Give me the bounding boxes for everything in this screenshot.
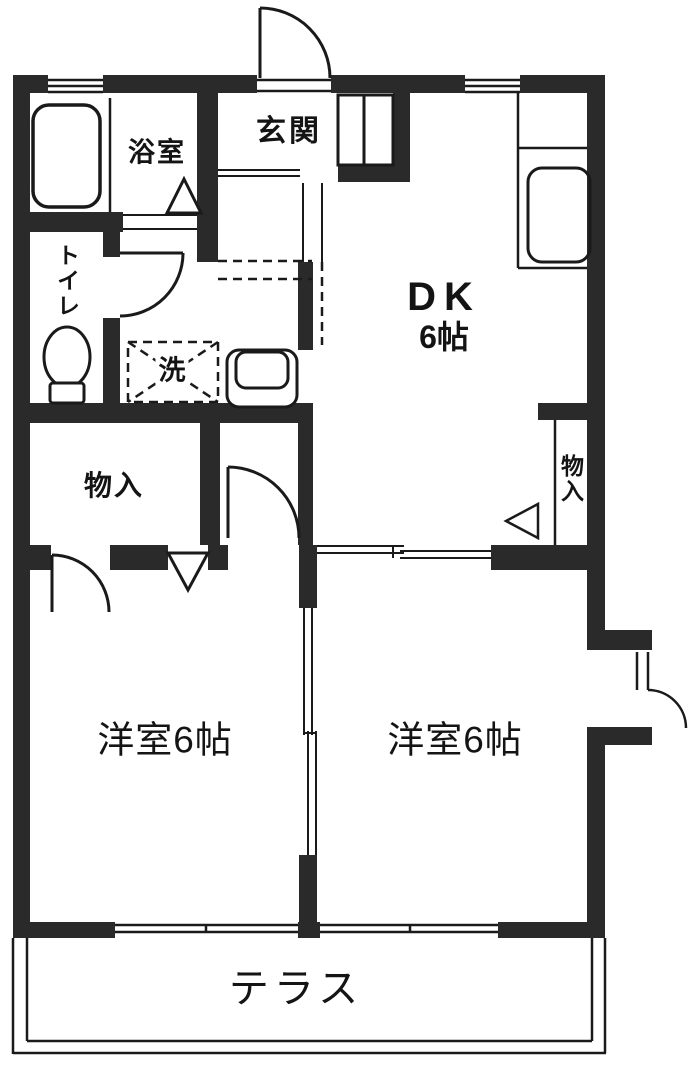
wall-segment [25,212,123,232]
toilet-fixture [44,327,90,403]
wall-segment [13,75,30,938]
closet-left-door [52,555,109,612]
side-service-door [637,652,686,728]
bedroom-left-door-marker [168,553,208,590]
wall-segment [491,545,605,570]
wall-segment [200,423,220,545]
wall-segment [299,545,317,570]
bathroom-window [48,80,103,92]
room-label-closet-right: 物入 [559,454,582,504]
bedroom-sliding-door [304,608,316,855]
bathroom-door-marker [167,179,201,213]
closet-right-door-marker [506,504,538,538]
room-label-terrace: テラス [229,969,363,1009]
wall-segment [103,318,120,405]
entrance-door [260,8,330,78]
wall-segment [103,232,120,257]
dk-sliding-door [317,546,491,558]
wall-segment [298,423,313,545]
wall-segment [338,165,410,182]
wall-segment [587,745,605,922]
wash-basin [227,350,297,407]
room-label-dk-size: 6帖 [419,321,469,353]
room-label-bedroom-left: 洋室6帖 [97,722,233,759]
floor-plan: 玄関 浴室 トイレ 洗 物入 物入 DK 6帖 洋室6帖 洋室6帖 テラス [0,0,700,1066]
wall-segment [298,262,313,350]
wall-segment [299,855,317,922]
wall-segment [587,727,652,745]
bathroom-threshold [123,215,197,229]
wall-segment [299,570,317,608]
wall-segment [197,93,218,262]
room-label-closet-left: 物入 [84,472,144,500]
kitchen-counter [518,93,590,268]
wall-segment [538,403,587,420]
kitchen-window [465,80,520,92]
room-label-bathroom: 浴室 [128,140,186,167]
wall-segment [587,630,652,650]
room-label-dk: DK [407,277,481,317]
bathtub [33,105,100,207]
entrance-step-lines [218,170,322,262]
bedroom-right-window [320,925,498,932]
wall-segment [110,545,168,570]
window-layer [48,80,520,932]
wall-segment [498,922,605,938]
floor-plan-drawing [0,0,700,1066]
room-label-entrance: 玄関 [256,117,322,147]
washroom-door [120,253,183,316]
wall-segment [298,922,320,938]
wall-segment [13,922,115,938]
room-label-bedroom-right: 洋室6帖 [387,722,523,759]
bedroom-left-window [115,925,298,932]
room-label-toilet: トイレ [55,244,78,319]
wall-segment [13,545,51,570]
wall-segment [103,75,257,93]
kitchen-sink [528,168,590,262]
room-label-washer: 洗 [156,356,189,387]
entrance-door-sill [257,80,331,91]
bedroom-right-door [228,467,299,538]
shoe-cabinet [338,95,393,165]
wall-segment [208,545,228,570]
